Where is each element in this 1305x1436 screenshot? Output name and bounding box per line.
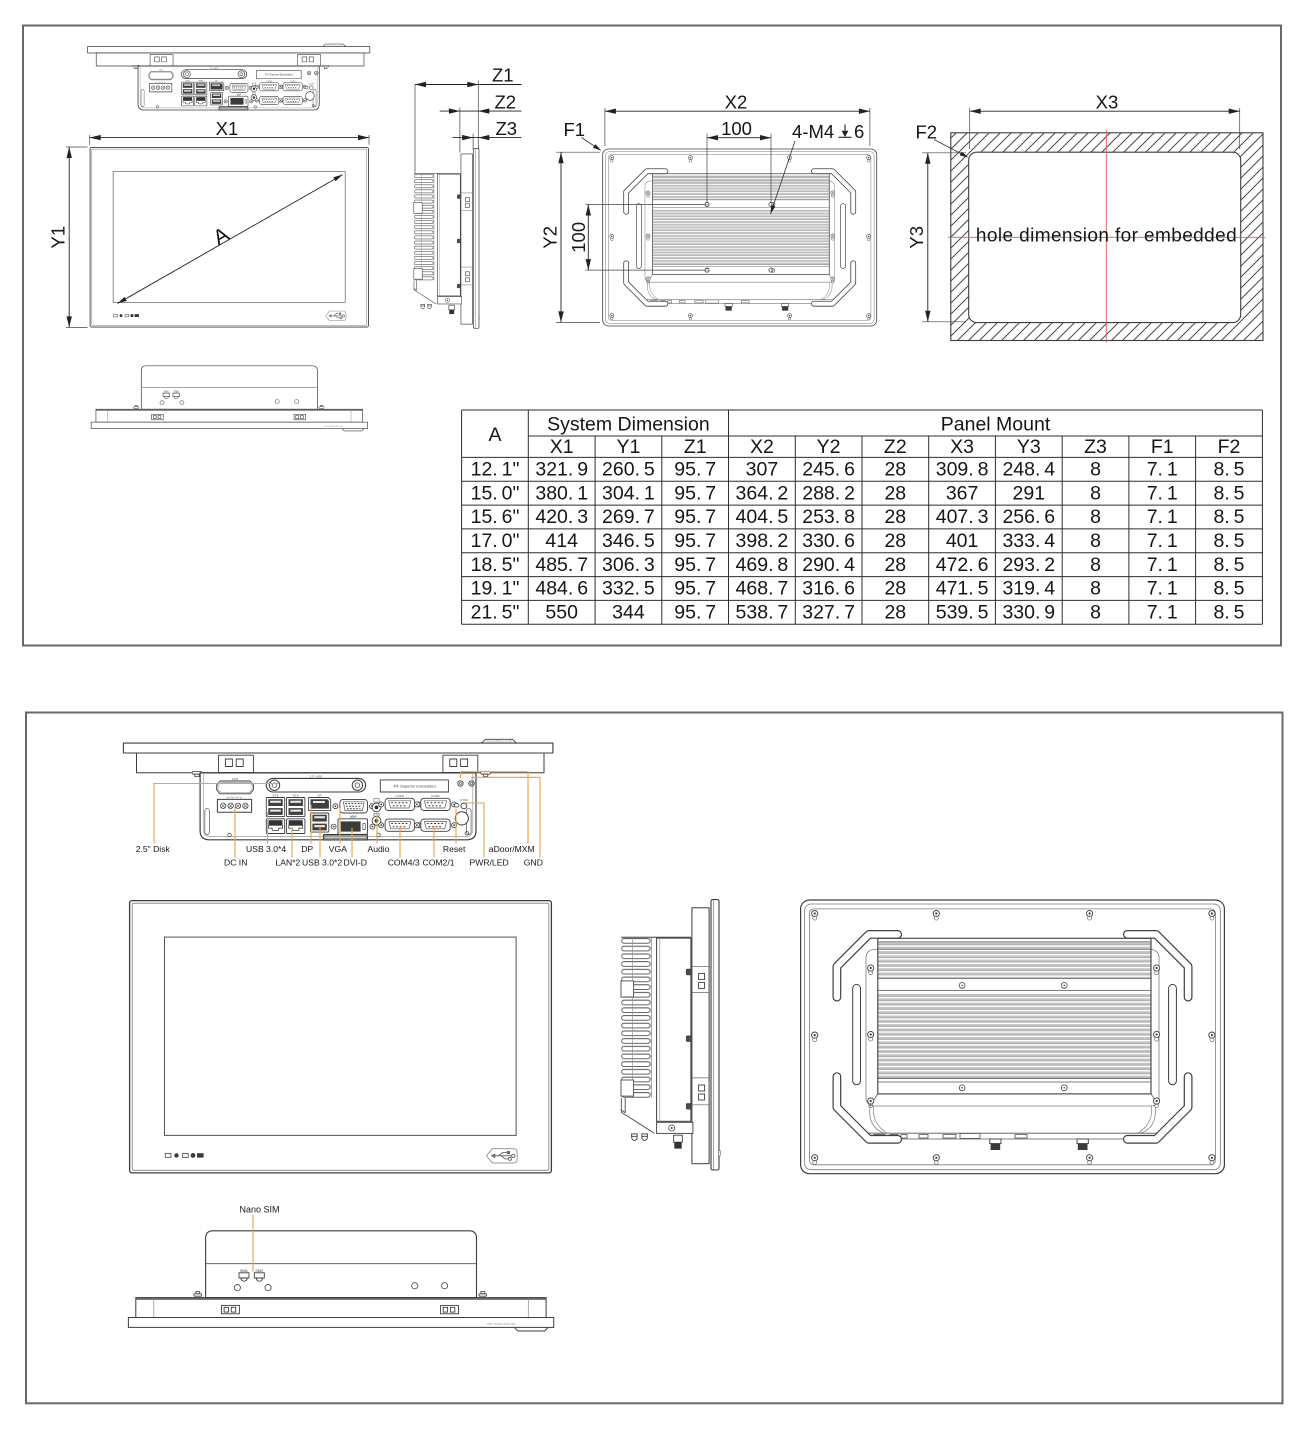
- svg-text:COM4/3: COM4/3: [388, 858, 420, 868]
- svg-text:X3: X3: [1096, 91, 1119, 112]
- svg-text:LAN*2: LAN*2: [276, 858, 301, 868]
- svg-text:Z1: Z1: [492, 65, 514, 86]
- svg-text:DP: DP: [301, 844, 313, 854]
- svg-text:F1: F1: [564, 119, 586, 140]
- svg-text:COM2/1: COM2/1: [423, 858, 455, 868]
- svg-text:aDoor/MXM: aDoor/MXM: [489, 844, 535, 854]
- svg-text:DC IN: DC IN: [224, 858, 247, 868]
- svg-text:hole dimension for embedded: hole dimension for embedded: [976, 226, 1237, 247]
- svg-text:Nano SIM: Nano SIM: [240, 1205, 280, 1215]
- svg-text:Panel Mount: Panel Mount: [941, 414, 1051, 436]
- svg-text:DVI-D: DVI-D: [344, 858, 367, 868]
- svg-text:A: A: [488, 424, 501, 446]
- svg-text:Audio: Audio: [368, 844, 390, 854]
- svg-text:6: 6: [854, 121, 864, 142]
- svg-text:X1: X1: [216, 118, 239, 139]
- svg-text:GND: GND: [524, 858, 543, 868]
- svg-text:X1Y1Z1X2Y2Z2X3Y3Z3F1F2: X1Y1Z1X2Y2Z2X3Y3Z3F1F2: [550, 436, 1241, 458]
- svg-text:Z2: Z2: [495, 91, 517, 112]
- svg-text:Reset: Reset: [443, 844, 466, 854]
- svg-text:X2: X2: [725, 91, 748, 112]
- svg-text:PWR/LED: PWR/LED: [470, 858, 509, 868]
- svg-text:100: 100: [568, 222, 589, 253]
- svg-text:USB 3.0*2: USB 3.0*2: [302, 858, 342, 868]
- svg-text:F2: F2: [916, 122, 938, 143]
- svg-text:Y1: Y1: [47, 226, 68, 249]
- svg-text:4-M4: 4-M4: [792, 121, 834, 142]
- svg-text:Y2: Y2: [539, 226, 560, 249]
- svg-text:Y3: Y3: [906, 226, 927, 249]
- svg-text:Z3: Z3: [496, 118, 518, 139]
- svg-text:System Dimension: System Dimension: [547, 414, 710, 436]
- svg-text:USB 3.0*4: USB 3.0*4: [246, 844, 286, 854]
- svg-text:VGA: VGA: [329, 844, 347, 854]
- svg-text:100: 100: [721, 118, 752, 139]
- svg-text:2.5" Disk: 2.5" Disk: [136, 844, 171, 854]
